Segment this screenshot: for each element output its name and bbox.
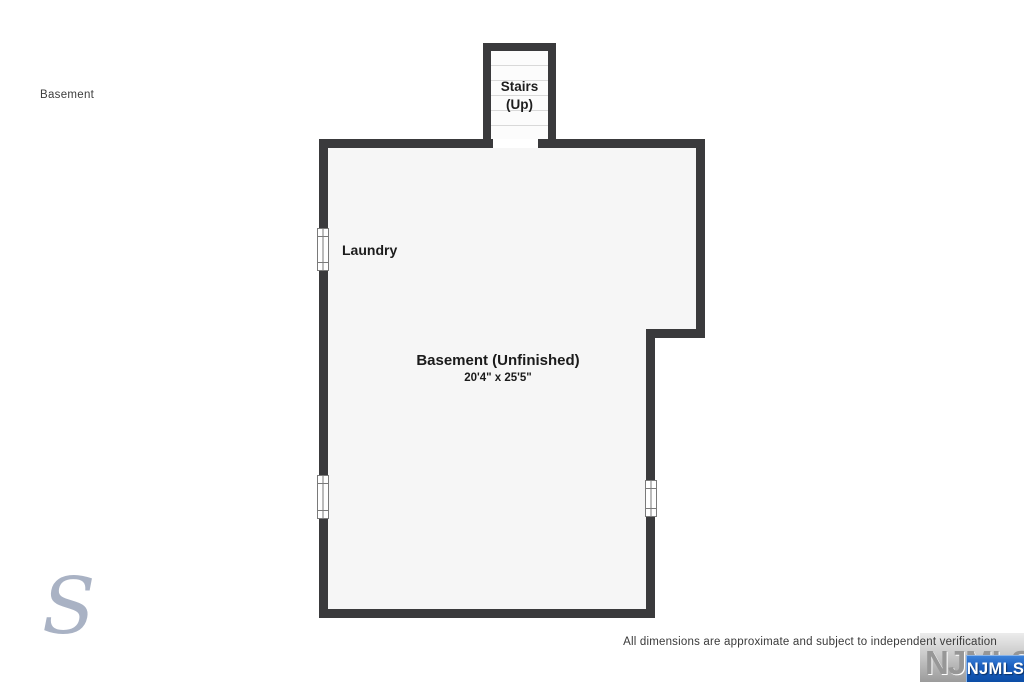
- wall-top-right-segment: [538, 139, 705, 148]
- wall-top-left-segment: [319, 139, 493, 148]
- window-symbol-left-lower: [317, 475, 329, 519]
- basement-room-label-block: Basement (Unfinished) 20'4" x 25'5": [348, 352, 648, 384]
- njmls-logo-badge: NJMLS: [966, 655, 1024, 682]
- window-symbol-right: [645, 480, 657, 517]
- window-symbol-left-upper: [317, 228, 329, 271]
- watermark-s-letter: S: [42, 566, 95, 648]
- stairs-top-wall: [483, 43, 556, 51]
- disclaimer-text: All dimensions are approximate and subje…: [623, 636, 997, 648]
- wall-left-segment-2: [319, 271, 328, 475]
- plan-title-label: Basement: [40, 89, 94, 101]
- laundry-room-label: Laundry: [342, 242, 397, 258]
- stairs-label-line2: (Up): [457, 96, 582, 114]
- basement-room-dimensions: 20'4" x 25'5": [348, 372, 648, 384]
- wall-bottom: [319, 609, 655, 618]
- floorplan-canvas: Basement Stairs (Up) Laundry Basement (U…: [0, 0, 1024, 682]
- stairs-label: Stairs (Up): [457, 78, 582, 114]
- basement-room-name: Basement (Unfinished): [348, 352, 648, 369]
- wall-left-segment-3: [319, 519, 328, 618]
- room-fill-upper: [328, 148, 697, 330]
- njmls-logo-badge-text: NJMLS: [967, 660, 1024, 679]
- wall-left-segment-1: [319, 139, 328, 228]
- wall-right-upper: [696, 139, 705, 338]
- stairs-label-line1: Stairs: [457, 78, 582, 96]
- wall-right-lower-segment-2: [646, 517, 655, 618]
